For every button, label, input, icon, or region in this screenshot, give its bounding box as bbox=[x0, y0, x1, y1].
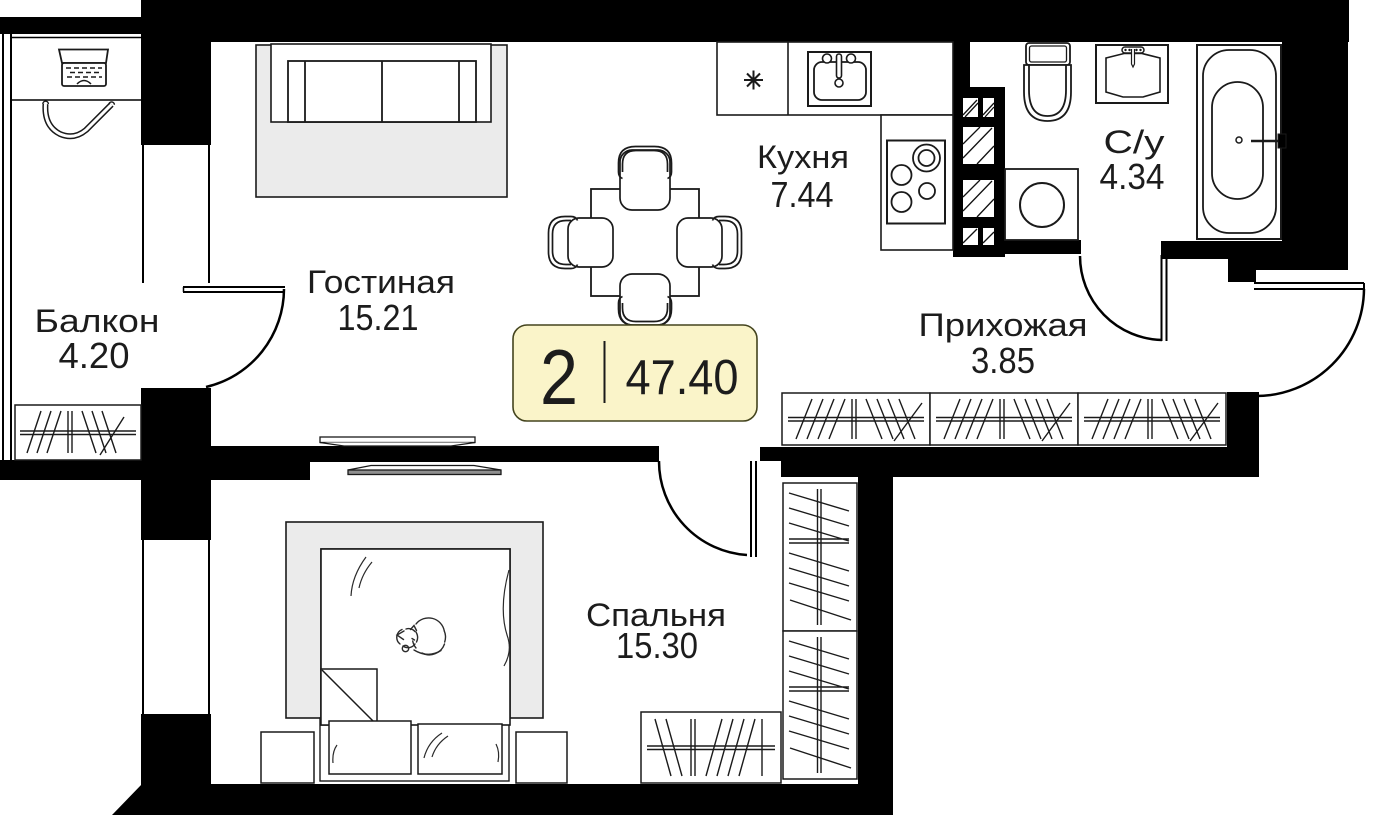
svg-text:Прихожая: Прихожая bbox=[919, 307, 1088, 343]
svg-text:Кухня: Кухня bbox=[757, 139, 849, 175]
svg-text:Балкон: Балкон bbox=[35, 303, 160, 339]
svg-text:15.30: 15.30 bbox=[616, 625, 698, 666]
svg-text:15.21: 15.21 bbox=[338, 297, 419, 338]
svg-text:4.34: 4.34 bbox=[1100, 156, 1165, 197]
svg-text:С/у: С/у bbox=[1104, 124, 1165, 160]
svg-text:4.20: 4.20 bbox=[59, 335, 130, 376]
svg-text:2: 2 bbox=[540, 333, 578, 421]
svg-text:47.40: 47.40 bbox=[626, 351, 739, 405]
svg-text:Гостиная: Гостиная bbox=[307, 264, 455, 300]
svg-text:3.85: 3.85 bbox=[971, 340, 1035, 381]
svg-text:7.44: 7.44 bbox=[771, 174, 834, 215]
